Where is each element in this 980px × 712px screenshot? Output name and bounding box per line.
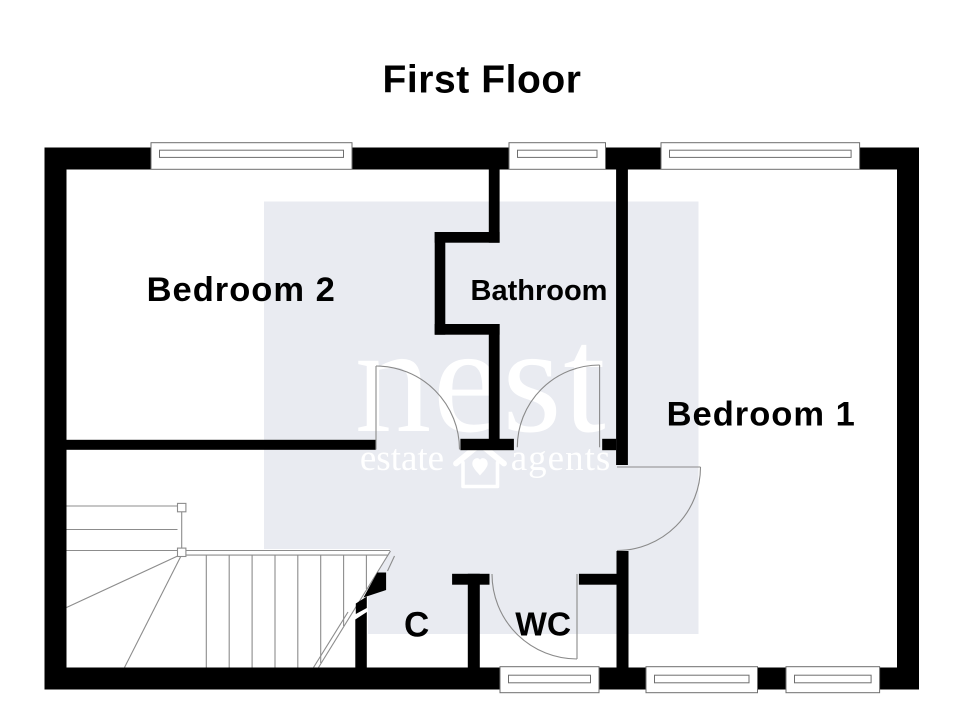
svg-text:First Floor: First Floor — [383, 58, 582, 101]
svg-text:agents: agents — [511, 438, 612, 479]
svg-text:Bedroom 1: Bedroom 1 — [667, 396, 856, 434]
svg-text:Bathroom: Bathroom — [471, 275, 608, 307]
svg-text:WC: WC — [515, 607, 571, 644]
svg-text:C: C — [404, 606, 429, 645]
svg-text:Bedroom 2: Bedroom 2 — [147, 271, 336, 309]
